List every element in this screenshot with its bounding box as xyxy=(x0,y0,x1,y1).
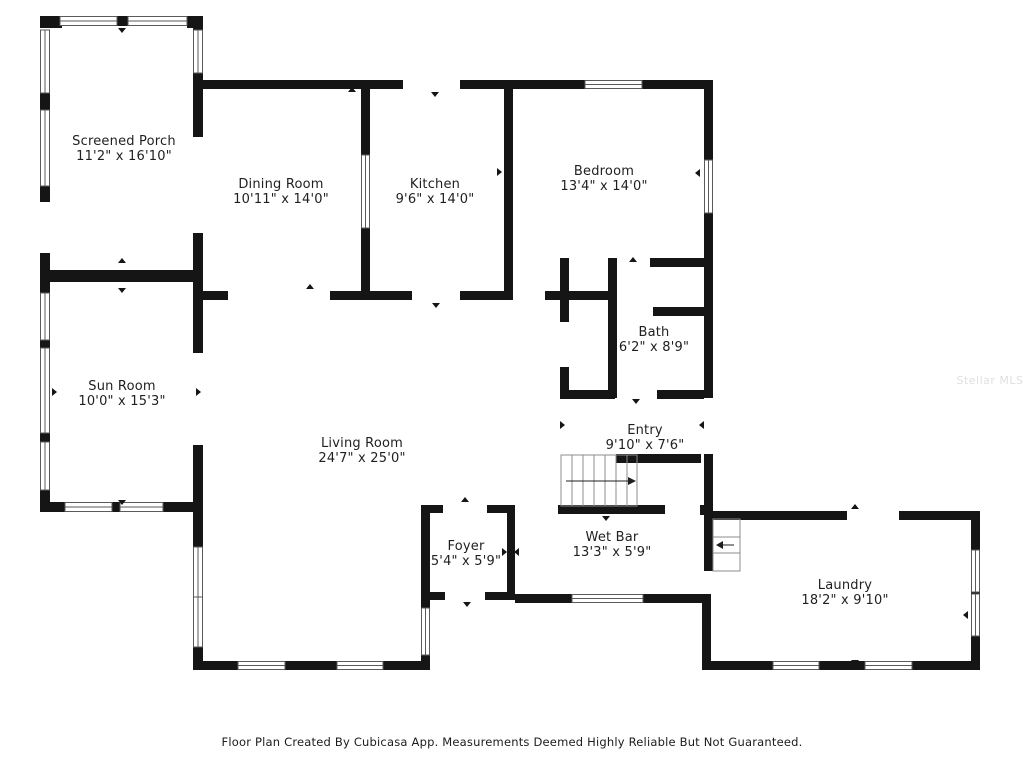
room-name: Kitchen xyxy=(410,177,460,192)
room-dimensions: 9'10" x 7'6" xyxy=(606,438,685,453)
room-label-bath: Bath 6'2" x 8'9" xyxy=(619,325,689,355)
room-name: Screened Porch xyxy=(72,134,176,149)
room-name: Wet Bar xyxy=(586,530,639,545)
stairs-up-arrow xyxy=(628,477,636,485)
footer-disclaimer: Floor Plan Created By Cubicasa App. Meas… xyxy=(0,735,1024,749)
stairs-laundry xyxy=(713,519,740,571)
room-label-bedroom: Bedroom 13'4" x 14'0" xyxy=(560,164,647,194)
room-label-entry: Entry 9'10" x 7'6" xyxy=(606,423,685,453)
room-name: Laundry xyxy=(818,578,872,593)
room-label-dining-room: Dining Room 10'11" x 14'0" xyxy=(233,177,329,207)
room-name: Living Room xyxy=(321,436,403,451)
room-label-living-room: Living Room 24'7" x 25'0" xyxy=(318,436,405,466)
room-name: Bath xyxy=(638,325,669,340)
walls-layer xyxy=(40,16,980,670)
room-dimensions: 10'11" x 14'0" xyxy=(233,192,329,207)
room-label-kitchen: Kitchen 9'6" x 14'0" xyxy=(396,177,475,207)
room-dimensions: 24'7" x 25'0" xyxy=(318,451,405,466)
room-name: Sun Room xyxy=(88,379,155,394)
room-name: Foyer xyxy=(447,539,484,554)
stairs-down-arrow xyxy=(716,541,723,549)
room-dimensions: 10'0" x 15'3" xyxy=(78,394,165,409)
stellar-mls-watermark: Stellar MLS xyxy=(955,374,1024,387)
room-label-screened-porch: Screened Porch 11'2" x 16'10" xyxy=(72,134,176,164)
room-dimensions: 6'2" x 8'9" xyxy=(619,340,689,355)
room-name: Bedroom xyxy=(574,164,634,179)
room-dimensions: 13'4" x 14'0" xyxy=(560,179,647,194)
room-label-laundry: Laundry 18'2" x 9'10" xyxy=(801,578,888,608)
room-name: Entry xyxy=(627,423,663,438)
room-name: Dining Room xyxy=(238,177,323,192)
room-dimensions: 18'2" x 9'10" xyxy=(801,593,888,608)
room-dimensions: 11'2" x 16'10" xyxy=(72,149,176,164)
room-label-wet-bar: Wet Bar 13'3" x 5'9" xyxy=(573,530,652,560)
room-label-foyer: Foyer 5'4" x 5'9" xyxy=(431,539,501,569)
room-label-sun-room: Sun Room 10'0" x 15'3" xyxy=(78,379,165,409)
floor-plan-page: Screened Porch 11'2" x 16'10" Dining Roo… xyxy=(0,0,1024,768)
room-dimensions: 13'3" x 5'9" xyxy=(573,545,652,560)
room-dimensions: 5'4" x 5'9" xyxy=(431,554,501,569)
room-dimensions: 9'6" x 14'0" xyxy=(396,192,475,207)
